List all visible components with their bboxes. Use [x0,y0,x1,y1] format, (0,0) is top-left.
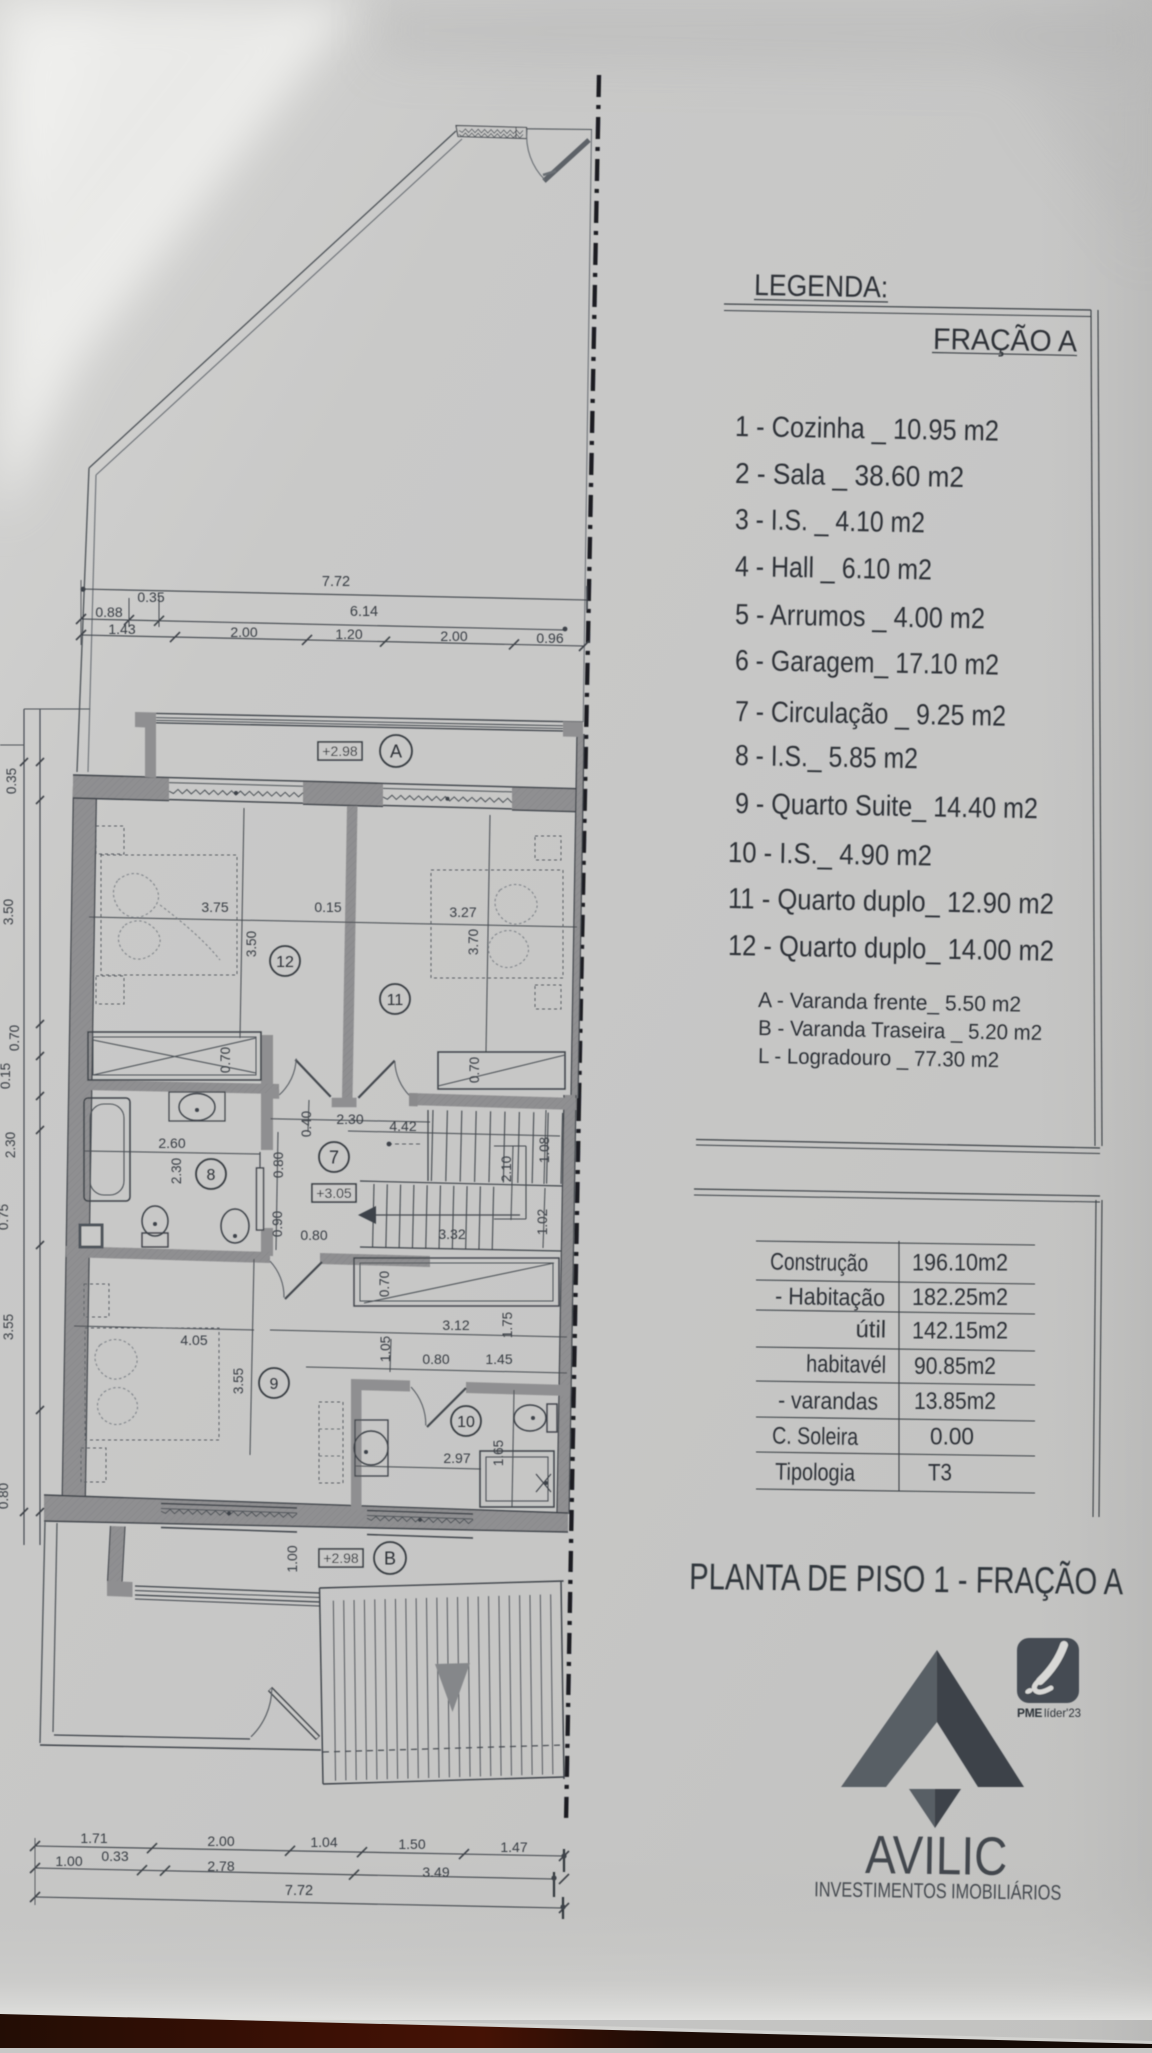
svg-text:A - Varanda frente_ 5.50 m2: A - Varanda frente_ 5.50 m2 [758,988,1021,1017]
svg-text:3 - I.S. _ 4.10 m2: 3 - I.S. _ 4.10 m2 [735,504,926,539]
svg-text:13.85m2: 13.85m2 [914,1388,996,1415]
svg-text:1.75: 1.75 [500,1312,515,1338]
svg-text:9 - Quarto Suite_ 14.40 m2: 9 - Quarto Suite_ 14.40 m2 [735,788,1039,825]
svg-text:0.70: 0.70 [377,1271,392,1297]
svg-text:0.35: 0.35 [137,589,164,605]
svg-text:9: 9 [270,1376,279,1393]
svg-text:1.65: 1.65 [491,1440,506,1466]
svg-text:4.05: 4.05 [180,1332,207,1348]
svg-text:3.50: 3.50 [244,931,259,957]
svg-text:1.43: 1.43 [108,621,135,637]
svg-text:0.33: 0.33 [101,1848,128,1864]
svg-text:0.00: 0.00 [930,1424,974,1451]
svg-text:2.78: 2.78 [207,1858,234,1874]
svg-text:11: 11 [387,992,404,1009]
svg-text:0.88: 0.88 [95,604,122,620]
svg-text:- Habitação: - Habitação [775,1283,885,1312]
svg-text:3.12: 3.12 [442,1317,469,1333]
svg-text:7.72: 7.72 [322,574,350,590]
svg-text:0.90: 0.90 [270,1211,285,1237]
svg-text:2.30: 2.30 [336,1111,363,1127]
svg-text:1.50: 1.50 [398,1836,425,1852]
svg-text:10 - I.S._ 4.90 m2: 10 - I.S._ 4.90 m2 [728,837,933,873]
svg-text:1.00: 1.00 [55,1853,82,1869]
svg-text:1.47: 1.47 [500,1839,527,1855]
svg-text:INVESTIMENTOS IMOBILIÁRIOS: INVESTIMENTOS IMOBILIÁRIOS [814,1878,1061,1904]
svg-text:2.60: 2.60 [158,1135,185,1151]
svg-text:4 - Hall _ 6.10 m2: 4 - Hall _ 6.10 m2 [735,551,933,586]
svg-text:Tipologia: Tipologia [775,1459,856,1487]
svg-text:3.70: 3.70 [466,929,481,955]
svg-text:útil: útil [855,1316,886,1344]
svg-text:0.15: 0.15 [0,1063,13,1089]
svg-text:0.80: 0.80 [300,1227,327,1243]
svg-text:3.49: 3.49 [422,1864,449,1880]
svg-text:12 - Quarto duplo_ 14.00 m2: 12 - Quarto duplo_ 14.00 m2 [728,930,1055,968]
svg-text:12: 12 [276,954,294,971]
svg-text:2.00: 2.00 [207,1833,234,1849]
svg-text:0.80: 0.80 [271,1152,286,1178]
svg-text:142.15m2: 142.15m2 [912,1318,1008,1345]
svg-text:6 - Garagem_ 17.10 m2: 6 - Garagem_ 17.10 m2 [735,645,1000,682]
svg-text:1.00: 1.00 [284,1545,300,1572]
svg-text:2.30: 2.30 [3,1132,18,1158]
svg-text:8 - I.S._ 5.85 m2: 8 - I.S._ 5.85 m2 [735,740,919,775]
svg-text:3.55: 3.55 [231,1368,246,1394]
svg-text:1.45: 1.45 [485,1351,512,1367]
svg-text:11 - Quarto duplo_ 12.90 m2: 11 - Quarto duplo_ 12.90 m2 [728,883,1055,921]
svg-text:0.15: 0.15 [314,899,341,915]
svg-text:A: A [390,742,402,762]
svg-text:0.40: 0.40 [299,1111,314,1137]
svg-text:0.80: 0.80 [0,1483,11,1509]
svg-text:0.35: 0.35 [4,768,19,794]
svg-text:PLANTA DE PISO 1 - FRAÇÃO A: PLANTA DE PISO 1 - FRAÇÃO A [689,1556,1124,1602]
svg-text:2.00: 2.00 [440,628,467,644]
svg-text:196.10m2: 196.10m2 [912,1250,1008,1277]
svg-text:8: 8 [207,1167,216,1184]
svg-text:+3.05: +3.05 [316,1185,352,1201]
svg-text:3.75: 3.75 [201,899,228,915]
svg-text:2.97: 2.97 [443,1450,470,1466]
svg-text:182.25m2: 182.25m2 [912,1284,1008,1311]
svg-text:1 - Cozinha _ 10.95 m2: 1 - Cozinha _ 10.95 m2 [735,411,1000,448]
svg-text:T3: T3 [928,1460,952,1487]
svg-text:habitavél: habitavél [806,1351,886,1379]
svg-text:1.20: 1.20 [335,626,362,642]
svg-text:1.71: 1.71 [80,1830,107,1846]
svg-text:0.96: 0.96 [536,630,563,646]
svg-text:3.50: 3.50 [1,899,16,925]
svg-text:0.75: 0.75 [0,1204,11,1230]
svg-text:+2.98: +2.98 [323,1550,359,1566]
svg-text:- varandas: - varandas [778,1387,878,1416]
svg-text:7.72: 7.72 [285,1883,313,1899]
svg-text:0.80: 0.80 [422,1351,449,1367]
svg-text:0.70: 0.70 [7,1025,22,1051]
svg-text:L - Logradouro _ 77.30 m2: L - Logradouro _ 77.30 m2 [758,1044,999,1072]
svg-text:líder'23: líder'23 [1044,1706,1081,1720]
svg-text:3.27: 3.27 [449,904,476,920]
svg-text:7 - Circulação _ 9.25 m2: 7 - Circulação _ 9.25 m2 [735,696,1007,733]
svg-text:1.04: 1.04 [310,1834,337,1850]
svg-text:+2.98: +2.98 [322,743,358,759]
svg-text:B: B [384,1549,396,1569]
svg-text:2.00: 2.00 [230,624,257,640]
svg-text:10: 10 [457,1414,475,1431]
svg-text:AVILIC: AVILIC [865,1825,1008,1887]
svg-text:2 - Sala _ 38.60 m2: 2 - Sala _ 38.60 m2 [735,458,965,494]
svg-text:1.02: 1.02 [535,1209,550,1235]
svg-text:3.55: 3.55 [1,1314,16,1340]
svg-text:3.32: 3.32 [438,1226,465,1242]
svg-text:LEGENDA:: LEGENDA: [754,269,889,304]
svg-text:B - Varanda Traseira _ 5.20 m2: B - Varanda Traseira _ 5.20 m2 [758,1016,1042,1045]
svg-text:0.70: 0.70 [467,1057,482,1083]
svg-text:5 - Arrumos _ 4.00 m2: 5 - Arrumos _ 4.00 m2 [735,599,986,635]
svg-text:0.70: 0.70 [218,1047,233,1073]
svg-text:PME: PME [1017,1706,1042,1720]
svg-text:2.30: 2.30 [169,1158,184,1184]
svg-text:6.14: 6.14 [350,604,378,620]
svg-text:C. Soleira: C. Soleira [772,1423,859,1452]
svg-text:Construção: Construção [770,1249,868,1278]
svg-text:90.85m2: 90.85m2 [914,1353,996,1380]
svg-text:7: 7 [329,1147,339,1167]
